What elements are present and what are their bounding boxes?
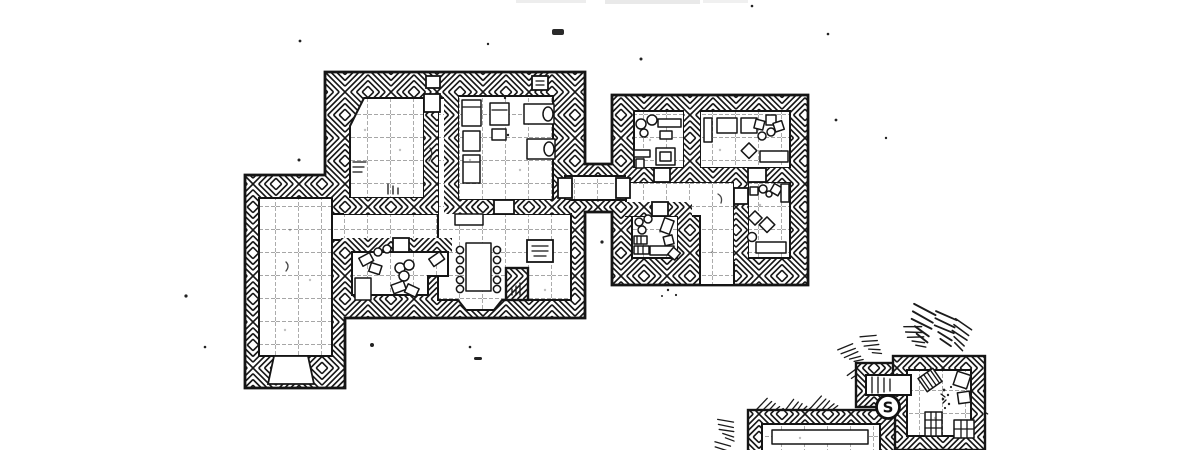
chimney-nook [532,76,548,90]
door-ne-room [748,168,766,182]
hearth-block [506,268,528,300]
stair-passage-floor [866,375,911,395]
door-corridor-west [558,178,572,198]
door-se-room [734,188,748,204]
door-nw-room [654,168,670,182]
room-study-floor [350,98,424,198]
wall-ne-south [700,168,794,182]
door-corridor-east [616,178,630,198]
wing-corridor-floor [332,214,452,240]
door-study [424,94,440,112]
dungeon-map-page: west-manor [0,0,1200,450]
bench [455,214,483,225]
secret-door-marker: S [877,396,900,419]
title-smudge [516,0,748,35]
door-wing-south-exit [268,356,314,384]
wall-study-east [424,112,438,214]
door-bunkroom [494,200,514,214]
building-south-cellar: south-cellar [713,303,988,450]
door-kitchen [393,238,409,252]
ink-blot [552,29,564,35]
wall-bunk-west [444,96,458,200]
west-wing-hall-floor [259,198,332,356]
south-chamber-table [772,430,868,444]
chimney-nook [426,76,440,88]
wall-study-south [344,198,424,214]
dungeon-map: west-manor [0,0,1200,450]
secret-door-label: S [883,399,894,417]
building-west-manor-and-east-house: west-manor [245,72,808,388]
door-sw-room [652,202,668,216]
